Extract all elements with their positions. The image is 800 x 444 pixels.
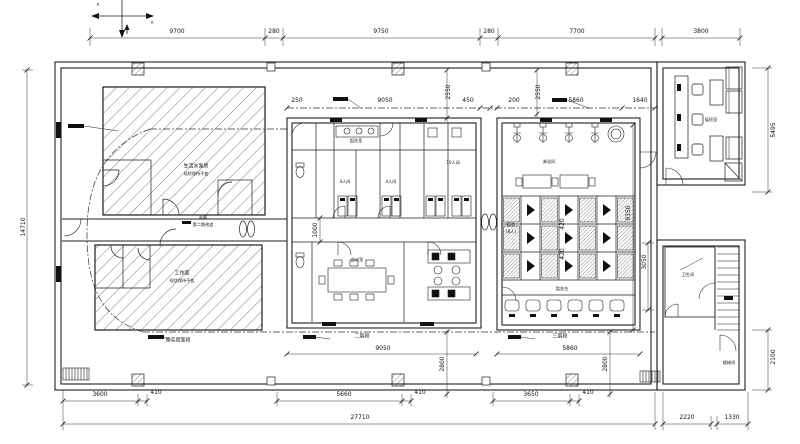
room-4a-label: 4人间 — [340, 181, 351, 185]
dim-420-a: 420 — [560, 218, 566, 229]
dim-right-5495: 5495 — [771, 122, 777, 137]
dim-right-9350: 9350 — [626, 205, 632, 220]
dim-top-6: 3800 — [693, 29, 708, 35]
expansion-joint — [482, 214, 497, 230]
dim-top-3: 9750 — [373, 29, 388, 35]
right-block — [497, 118, 656, 330]
dim-left-14710: 14710 — [21, 217, 27, 236]
dim-top-2: 280 — [268, 29, 279, 35]
dim-right-3050: 3050 — [642, 254, 648, 269]
dim-inner-450: 450 — [462, 98, 473, 104]
dim-2800-b: 2800 — [603, 356, 609, 371]
dim-1330: 1330 — [724, 415, 739, 421]
dim-27710: 27710 — [350, 415, 369, 421]
duty-room-label: 值班室 — [705, 119, 717, 123]
room-10-label: 10人间 — [446, 162, 460, 166]
dorm-label: 宿舍 — [507, 224, 515, 228]
dim-inner-200: 200 — [508, 98, 519, 104]
dim-inner-250: 250 — [291, 98, 302, 104]
meeting-label: 会议室 — [351, 259, 363, 263]
toilet-label: 卫生间 — [682, 274, 694, 278]
pump-room — [103, 87, 265, 215]
window-bars — [56, 122, 61, 282]
dim-inner-1640: 1640 — [632, 98, 647, 104]
section-mark-a: A — [97, 4, 100, 8]
dim-top-5: 7700 — [569, 29, 584, 35]
dim-420-b: 420 — [560, 248, 566, 259]
room-pump-note: 现状保持不变 — [184, 173, 209, 177]
dim-2220: 2220 — [679, 415, 694, 421]
old-lab-label: 原实验室段 — [165, 339, 190, 344]
wash-counter-label: 盥洗台 — [556, 288, 568, 292]
dim-bottom-9050: 9050 — [375, 346, 390, 352]
dim-right-2100: 2100 — [771, 349, 777, 364]
annex-stair — [665, 247, 739, 351]
dim-410-a: 410 — [150, 390, 161, 396]
dim-bottom-5860: 5860 — [562, 346, 577, 352]
stairwell-label: 楼梯间 — [723, 362, 735, 366]
dim-410-b: 410 — [414, 390, 425, 396]
north-section-mark — [91, 0, 154, 38]
corridor-note: 第二期改造 — [193, 224, 214, 228]
dim-top-1: 9700 — [169, 29, 184, 35]
dorm-capacity: (8人) — [506, 231, 516, 235]
dim-inner-5860: 5860 — [568, 98, 583, 104]
dim-410-c: 410 — [582, 390, 593, 396]
corridor-name: 走廊 — [199, 217, 207, 221]
section3-label: 三层段 — [552, 335, 567, 340]
dim-2550-a: 2550 — [446, 84, 452, 99]
showers — [513, 123, 624, 143]
dim-5660: 5660 — [336, 392, 351, 398]
dim-3650: 3650 — [523, 392, 538, 398]
section-mark-b: A — [151, 22, 154, 26]
wash-basins — [505, 300, 624, 317]
annex-office — [666, 67, 742, 185]
dim-corridor-1000: 1000 — [313, 222, 319, 237]
dim-2800-a: 2800 — [440, 356, 446, 371]
dim-2550-b: 2550 — [536, 84, 542, 99]
dim-3600: 3600 — [92, 392, 107, 398]
floorplan-linework — [0, 0, 800, 444]
section2-label: 二层段 — [354, 335, 369, 340]
floor-plan-canvas: 9700 280 9750 280 7700 3800 250 9050 450… — [0, 0, 800, 444]
dorm-bed-arrows — [527, 204, 611, 272]
room-4b-label: 4人间 — [386, 181, 397, 185]
washroom-label: 盥洗室 — [350, 140, 362, 144]
room-studio-name: 工作室 — [174, 272, 189, 277]
corridor-walls — [62, 219, 287, 241]
room-studio-note: 现状保持不变 — [170, 280, 195, 284]
dim-top-4: 280 — [483, 29, 494, 35]
dim-inner-9050: 9050 — [377, 98, 392, 104]
room-pump-name: 生活水泵房 — [183, 165, 208, 170]
shower-label: 淋浴间 — [543, 161, 555, 165]
